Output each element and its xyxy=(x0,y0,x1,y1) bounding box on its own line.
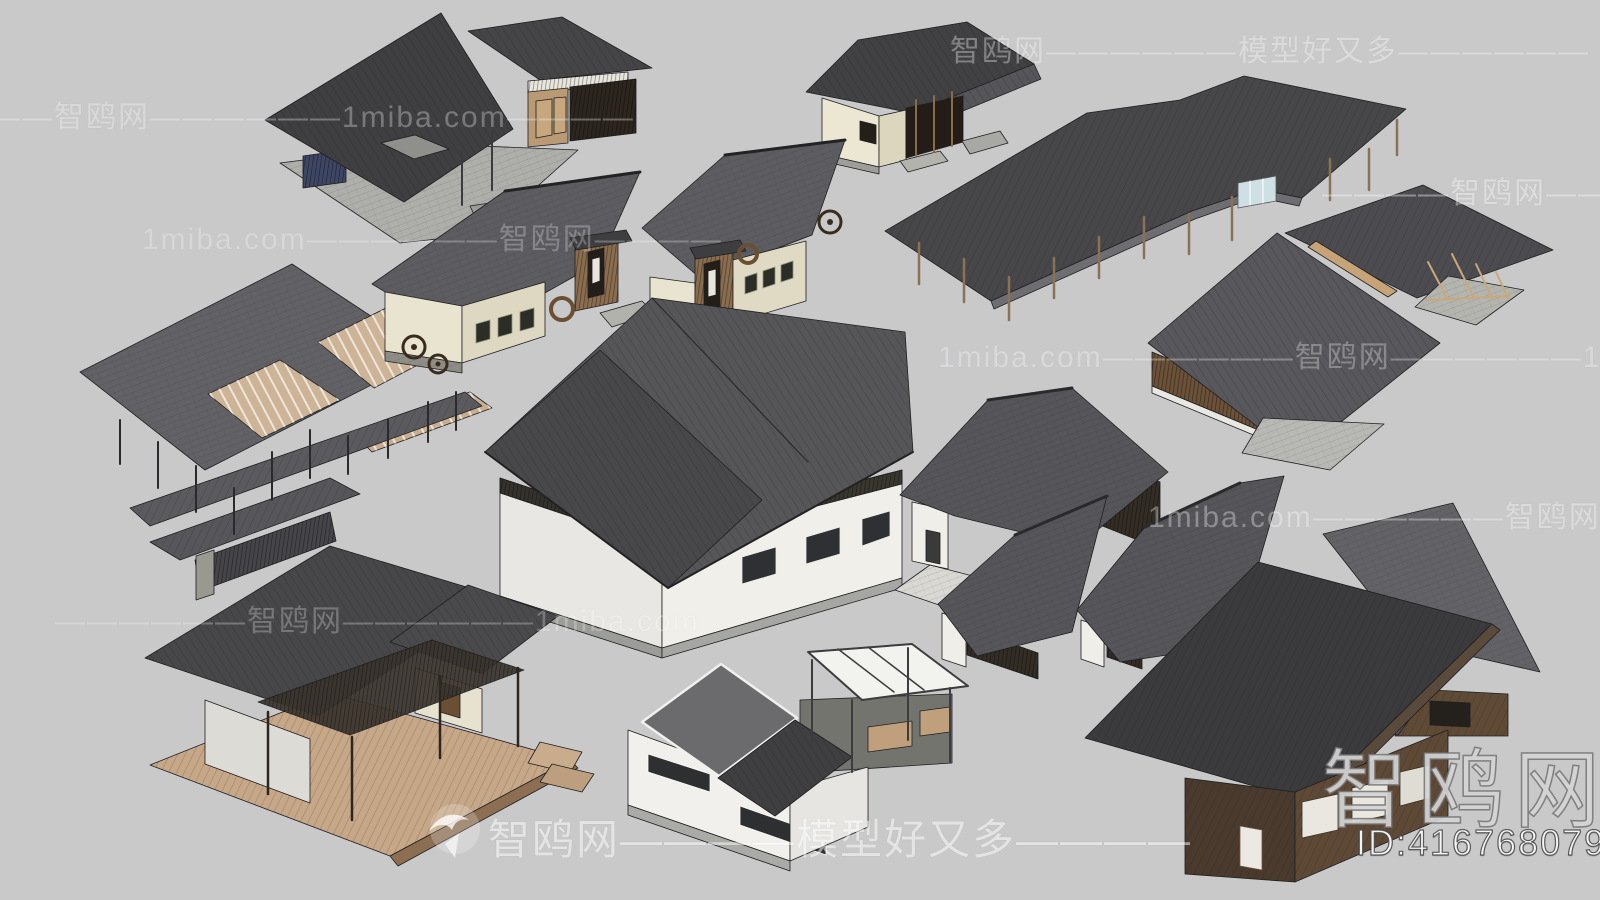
watermark-text-5: 1miba.com——————智鸥网—————— xyxy=(1148,492,1600,536)
watermark-text-1: ——智鸥网——————1miba.com———— xyxy=(0,92,635,136)
watermark-text-7: 智鸥网————模型好又多———— xyxy=(488,806,1192,867)
watermark-text-4: 1miba.com——————智鸥网——————1miba.com xyxy=(938,332,1600,376)
watermark-text-6: ——————智鸥网——————1miba.com xyxy=(55,596,700,640)
seagull-logo-icon xyxy=(424,802,486,868)
watermark-text-2: ————智鸥网—— xyxy=(1322,168,1600,212)
model-preview-image: 智鸥网——————模型好又多————————智鸥网——————1miba.com… xyxy=(0,0,1600,900)
model-id-text: ID:416768079 xyxy=(1356,822,1600,864)
watermark-text-3: 1miba.com——————智鸥网———— xyxy=(142,214,723,258)
watermark-text-0: 智鸥网——————模型好又多—————— xyxy=(950,26,1590,70)
